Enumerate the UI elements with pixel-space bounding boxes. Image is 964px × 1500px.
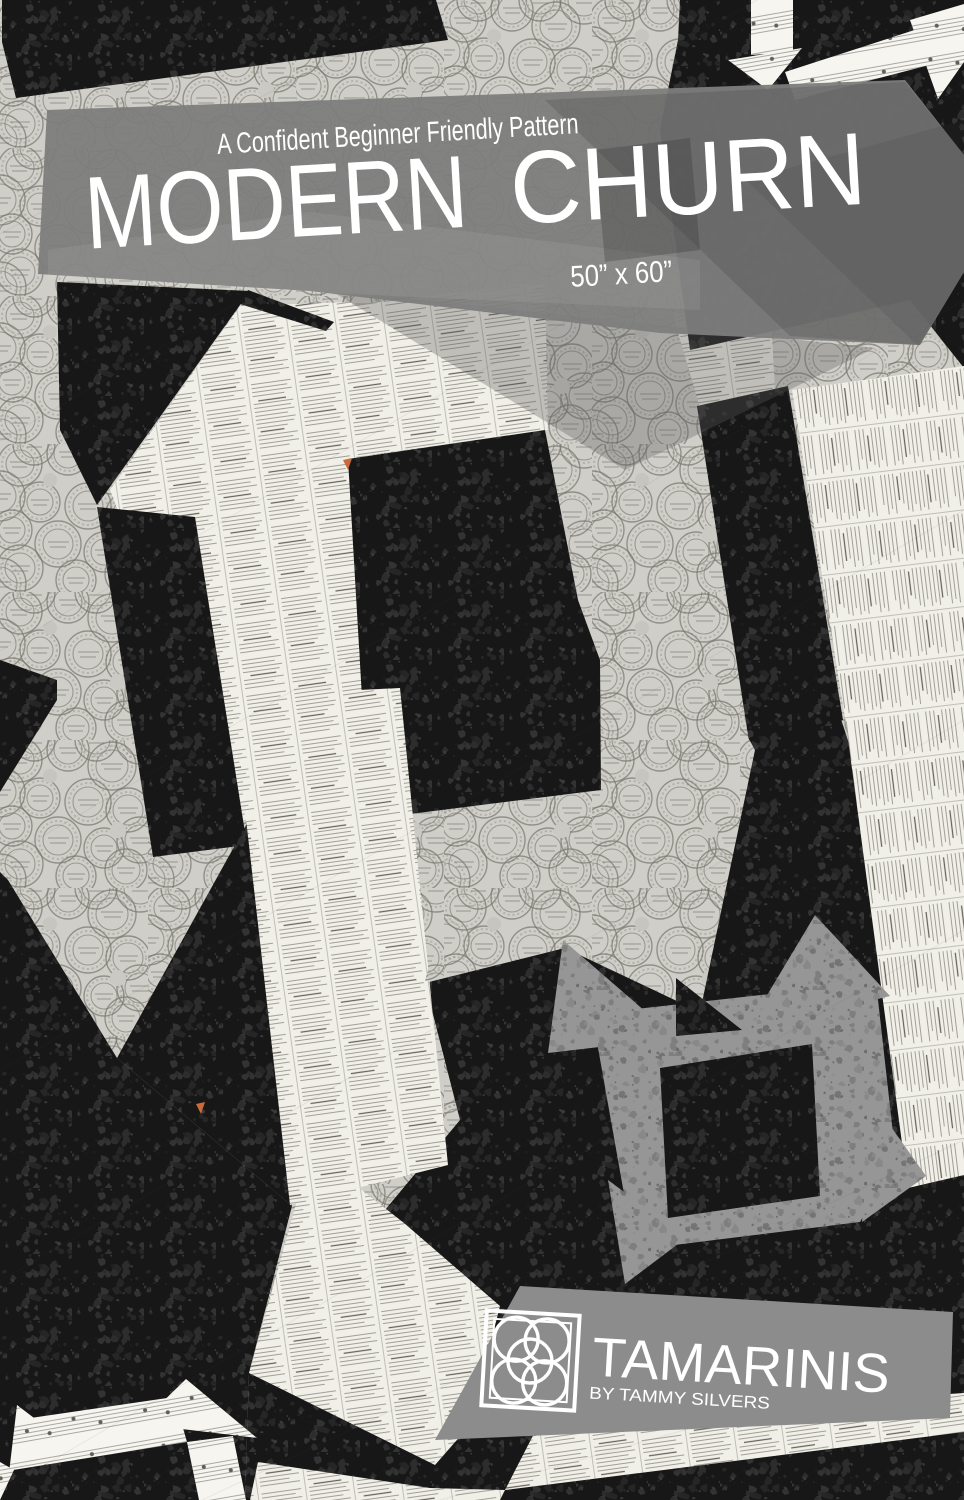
svg-text:CHURN: CHURN — [507, 111, 869, 246]
svg-text:MODERN: MODERN — [82, 134, 471, 271]
svg-text:50” x 60”: 50” x 60” — [569, 255, 673, 294]
